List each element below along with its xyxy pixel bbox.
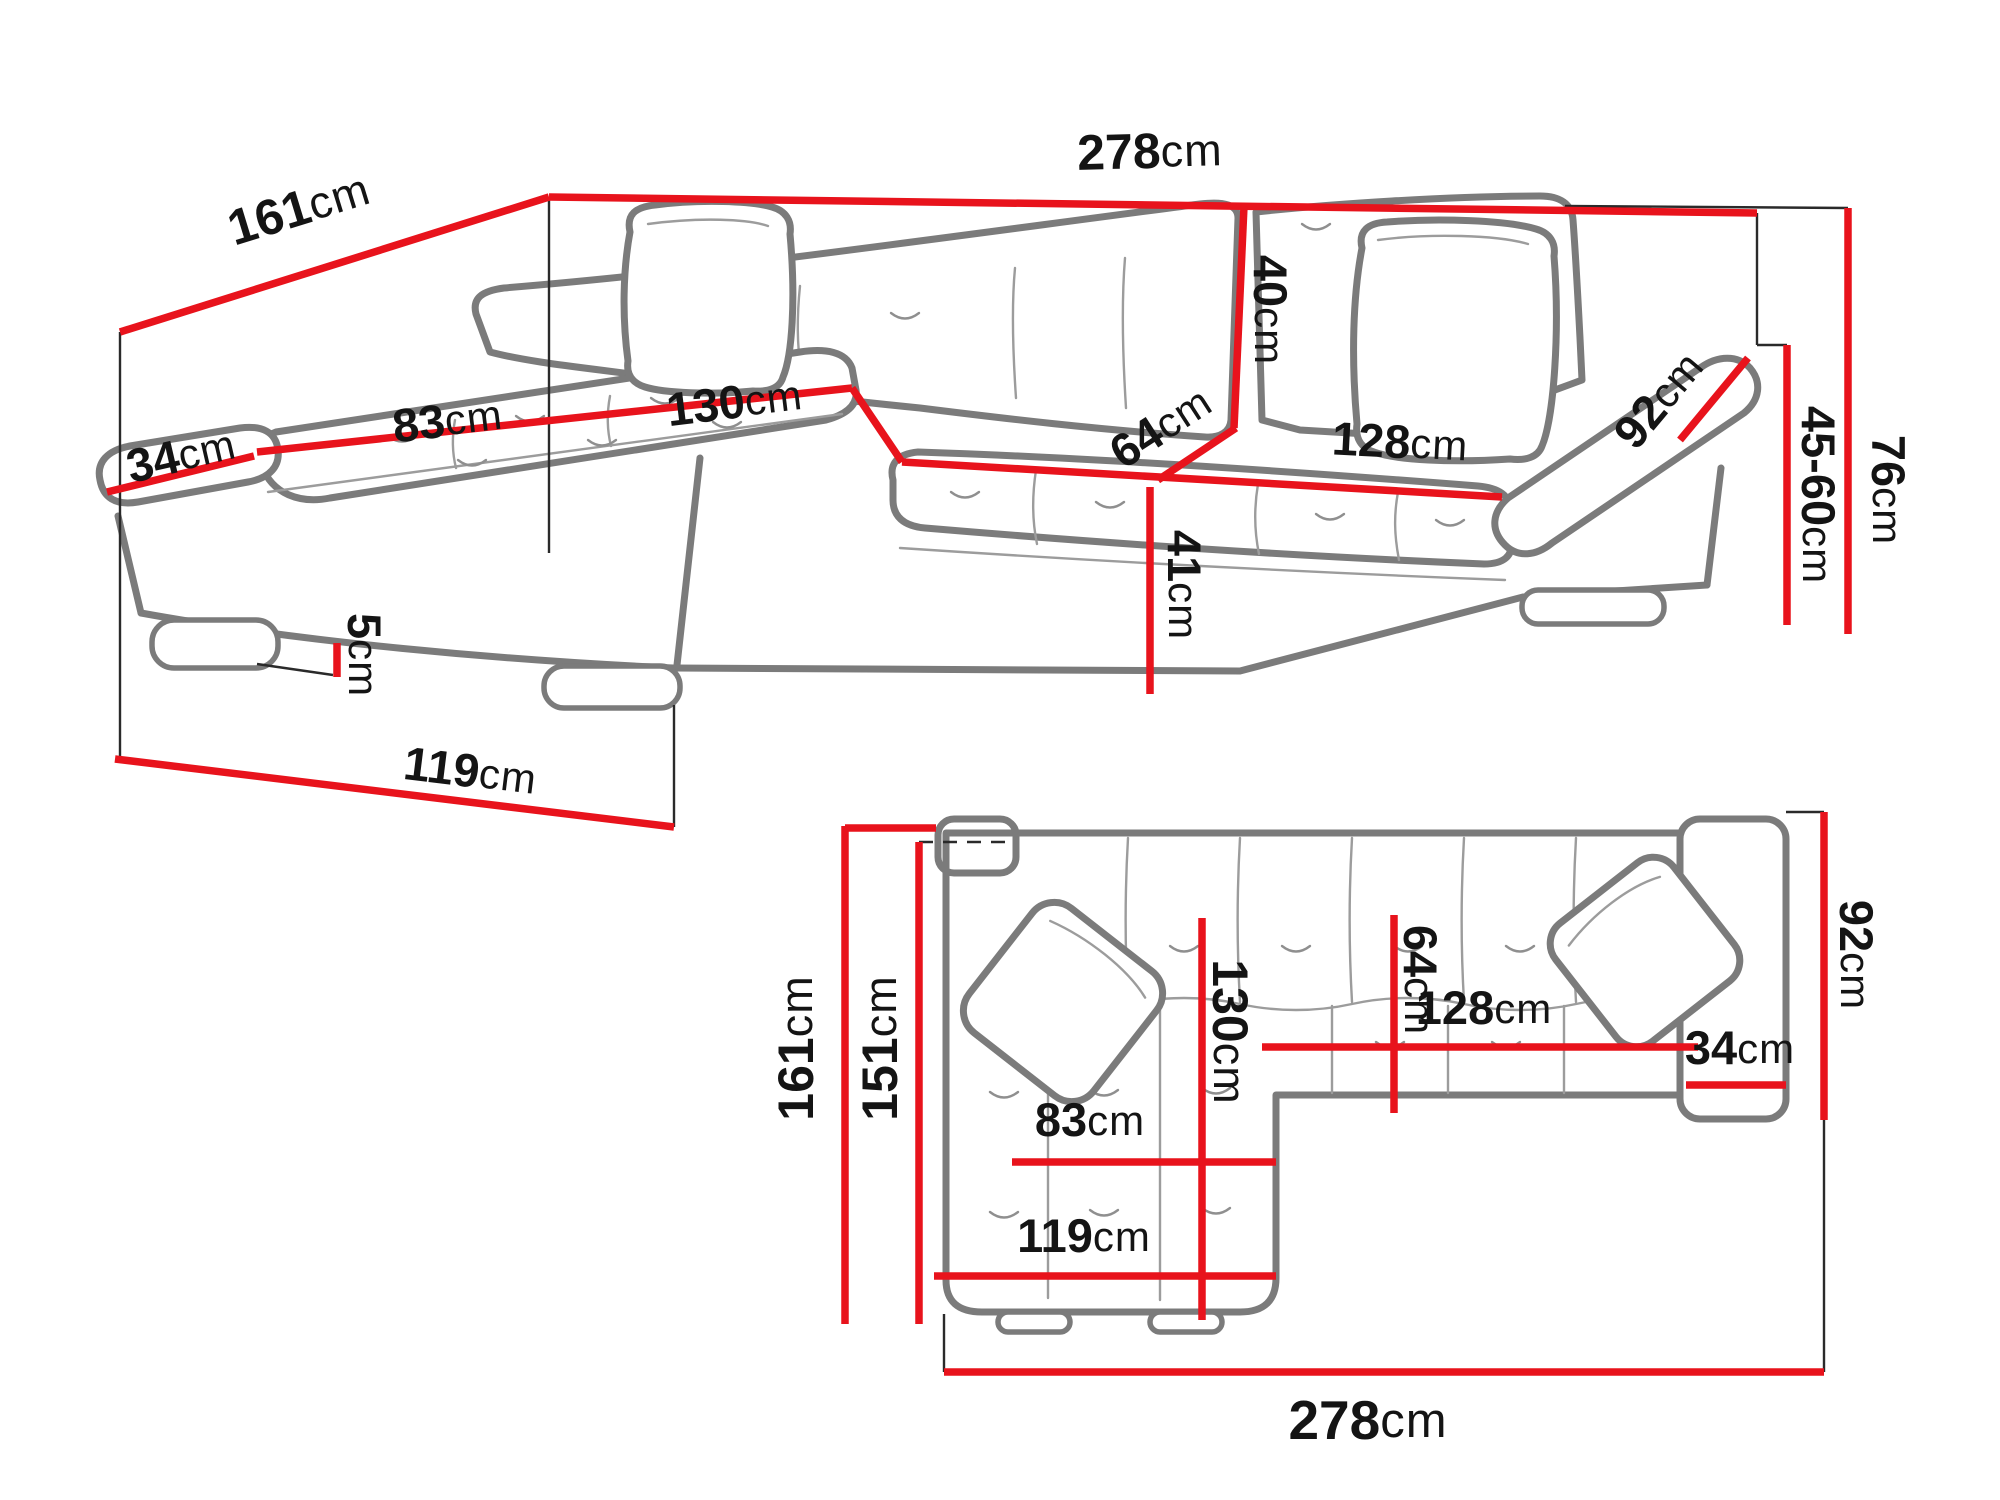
plan-dim-label-armrest-length: 92cm (1830, 900, 1883, 1010)
plan-dim-label-chaise-depth: 130cm (1202, 959, 1258, 1104)
plan-dim-seat-width-value: 128 (1416, 981, 1494, 1034)
plan-dim-chaise-seat-width-unit: cm (1087, 1097, 1145, 1144)
dim-label-front-height: 41cm (1158, 530, 1211, 640)
plan-dim-seat-width-unit: cm (1494, 985, 1552, 1032)
plan-dim-chaise-width-value: 119 (1017, 1209, 1093, 1262)
dim-leg-height-value: 5 (338, 613, 391, 639)
diagram-stage: 161cm 278cm 34cm 83cm 130cm 40cm 64cm 12… (0, 0, 2000, 1500)
dim-backrest-height-unit: cm (1246, 307, 1293, 365)
dim-seat-height-range-unit: cm (1794, 526, 1841, 584)
plan-dim-total-depth-unit: cm (771, 975, 822, 1037)
dim-total-depth-value: 161 (221, 178, 317, 256)
plan-sofa-leg (1150, 1312, 1222, 1332)
base-right-edge (1707, 468, 1721, 585)
dim-line-chaise-front-119 (115, 759, 674, 827)
tuft-mark (990, 1212, 1018, 1218)
plan-dim-armrest-width-value: 34 (1685, 1021, 1737, 1074)
sofa-dimension-diagram: 161cm 278cm 34cm 83cm 130cm 40cm 64cm 12… (0, 0, 2000, 1500)
dim-chaise-depth-unit: cm (742, 371, 805, 425)
plan-dim-label-total-depth: 161cm (768, 975, 824, 1120)
plan-dim-inner-depth-unit: cm (855, 975, 906, 1037)
dim-front-height-value: 41 (1158, 530, 1211, 582)
dim-chaise-front-width-value: 119 (401, 736, 483, 798)
chaise-main-junction (677, 458, 700, 665)
dim-overall-height-value: 76 (1862, 435, 1915, 487)
dim-total-depth-unit: cm (302, 163, 376, 230)
plan-left-pillow-body (952, 891, 1174, 1113)
plan-backrest-division (1462, 838, 1464, 1002)
leg-height-leader (257, 664, 333, 675)
plan-dim-label-chaise-width: 119cm (1017, 1209, 1151, 1262)
plan-dim-label-total-width: 278cm (1288, 1389, 1447, 1451)
dim-chaise-front-width-unit: cm (476, 749, 539, 803)
dim-label-seat-height-range: 45-60cm (1792, 406, 1845, 584)
dim-chaise-seat-width-unit: cm (442, 391, 505, 445)
dim-seat-width-unit: cm (1409, 420, 1469, 470)
perspective-view: 161cm 278cm 34cm 83cm 130cm 40cm 64cm 12… (99, 121, 1914, 827)
tuft-mark (1506, 946, 1534, 952)
base-left-edge (118, 516, 141, 613)
dim-overall-height-unit: cm (1864, 487, 1911, 545)
plan-backrest-division (1350, 838, 1352, 1002)
dim-backrest-height-value: 40 (1244, 255, 1297, 307)
dim-seat-height-range-value: 45-60 (1792, 406, 1845, 526)
plan-dim-total-depth-value: 161 (768, 1037, 824, 1120)
plan-dim-seat-depth-value: 64 (1394, 925, 1447, 977)
tuft-mark (990, 1092, 1018, 1098)
plan-left-pillow (952, 891, 1174, 1113)
dim-label-total-depth: 161cm (221, 160, 376, 256)
plan-dim-label-chaise-seat-width: 83cm (1035, 1093, 1145, 1146)
plan-dim-chaise-seat-width-value: 83 (1035, 1093, 1087, 1146)
plan-dim-total-width-unit: cm (1380, 1394, 1447, 1448)
dim-label-seat-width: 128cm (1331, 412, 1470, 472)
plan-dim-armrest-length-value: 92 (1830, 900, 1883, 952)
dim-label-backrest-height: 40cm (1244, 255, 1297, 365)
dim-chaise-seat-width-value: 83 (390, 394, 448, 453)
plan-dim-chaise-depth-unit: cm (1204, 1043, 1255, 1105)
sofa-leg (1522, 590, 1664, 624)
tuft-mark (1170, 946, 1198, 952)
plan-dim-total-width-value: 278 (1288, 1389, 1380, 1451)
dim-front-height-unit: cm (1160, 582, 1207, 640)
sofa-leg (544, 666, 680, 708)
plan-dim-armrest-width-unit: cm (1737, 1025, 1795, 1072)
plan-dim-armrest-length-unit: cm (1832, 952, 1879, 1010)
plan-sofa-leg (998, 1312, 1070, 1332)
plan-dim-inner-depth-value: 151 (852, 1037, 908, 1120)
tuft-mark (1202, 1208, 1230, 1214)
plan-dim-label-inner-depth: 151cm (852, 975, 908, 1120)
dim-chaise-depth-value: 130 (664, 374, 748, 436)
dim-seat-width-value: 128 (1331, 412, 1412, 469)
plan-dim-chaise-depth-value: 130 (1202, 959, 1258, 1042)
dim-total-width-value: 278 (1076, 123, 1161, 181)
plan-left-armrest (938, 819, 1016, 873)
plan-dim-label-armrest-width: 34cm (1685, 1021, 1795, 1074)
tuft-mark (1282, 946, 1310, 952)
dim-total-width-unit: cm (1160, 124, 1223, 177)
dim-label-total-width: 278cm (1076, 121, 1223, 181)
sofa-leg (152, 620, 278, 668)
left-pillow (624, 201, 793, 393)
plan-view: 161cm 151cm 130cm 64cm 128cm 34cm 92cm 8… (768, 812, 1882, 1451)
plan-dim-chaise-width-unit: cm (1093, 1213, 1151, 1260)
dim-leg-height-unit: cm (340, 639, 387, 697)
dim-label-leg-height: 5cm (338, 613, 391, 697)
dim-label-overall-height: 76cm (1862, 435, 1915, 545)
plan-dim-label-seat-width: 128cm (1416, 981, 1552, 1034)
